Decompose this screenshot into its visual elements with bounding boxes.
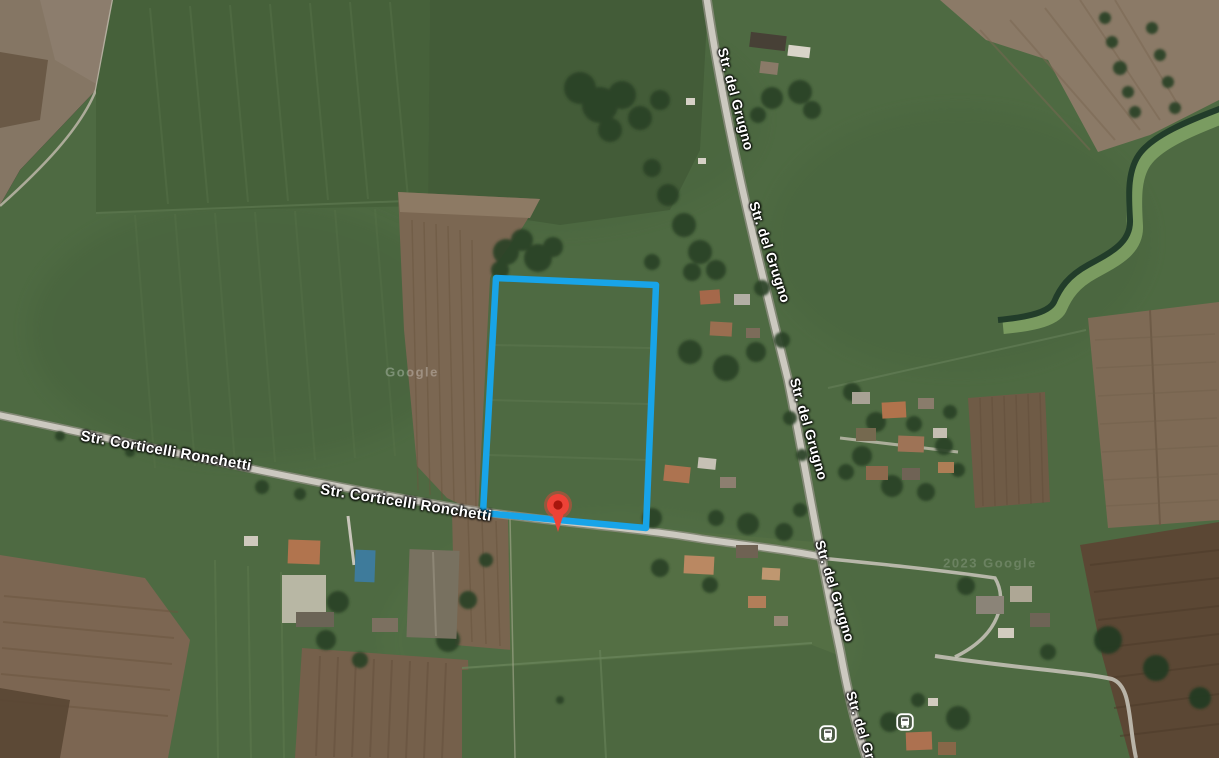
parcel-boundary-polygon[interactable] — [483, 278, 656, 528]
satellite-map-canvas[interactable]: Str. Corticelli RonchettiStr. Corticelli… — [0, 0, 1219, 758]
map-pin[interactable] — [544, 491, 572, 532]
transit-stop-bus-icon[interactable] — [896, 713, 914, 731]
transit-stop-bus-icon[interactable] — [819, 725, 837, 743]
map-overlay-layer — [0, 0, 1219, 758]
